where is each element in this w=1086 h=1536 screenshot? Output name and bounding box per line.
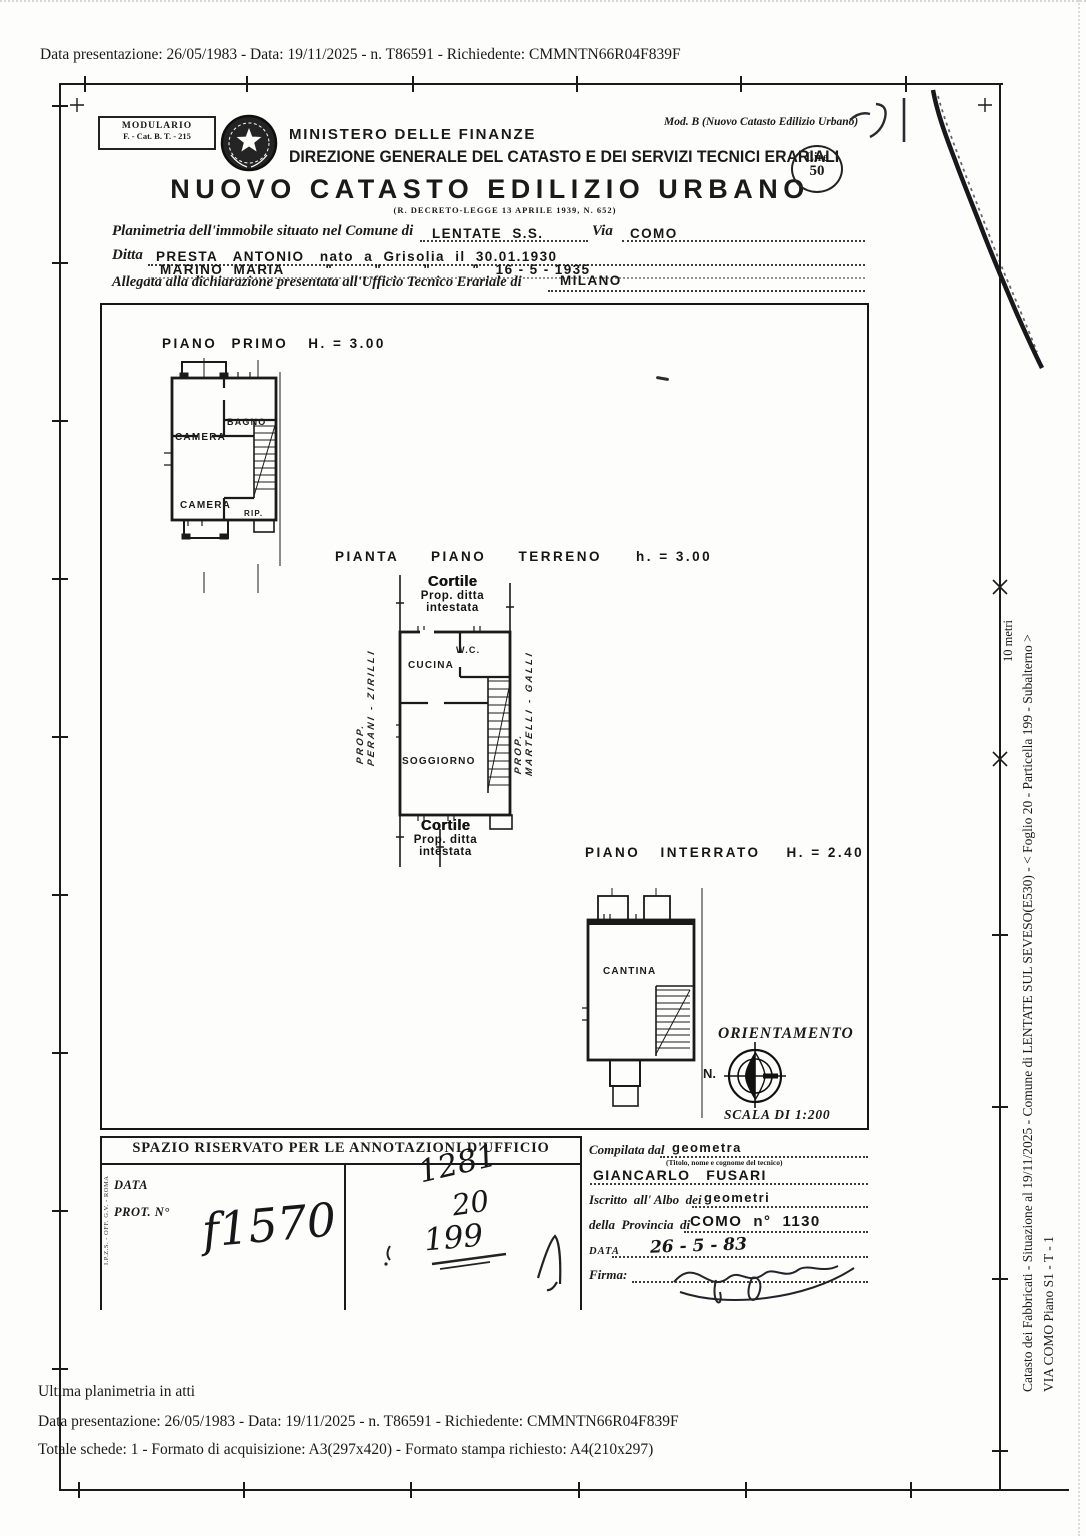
ruler-tick — [78, 1482, 80, 1498]
titolo-note: (Titolo, nome e cognome del tecnico) — [666, 1158, 783, 1167]
basement-title-text: PIANO INTERRATO — [585, 845, 761, 860]
room-label-camera-1: CAMERA — [175, 432, 226, 443]
scale-bar-label: 10 metri — [1001, 620, 1016, 662]
planimetria-label: Planimetria dell'immobile situato nel Co… — [112, 223, 413, 240]
ruler-tick — [576, 76, 578, 92]
dotted-line — [692, 1206, 868, 1208]
ruler-tick — [410, 1482, 412, 1498]
cortile-top-title: Cortile — [405, 574, 500, 590]
firma-label: Firma: — [589, 1267, 627, 1283]
via-label: Via — [592, 223, 613, 240]
ruler-tick — [52, 262, 68, 264]
technician-name: GIANCARLO FUSARI — [593, 1167, 767, 1183]
scanned-cadastral-document: Data presentazione: 26/05/1983 - Data: 1… — [0, 0, 1086, 1536]
room-label-cantina: CANTINA — [603, 966, 656, 977]
cortile-top-sub2: intestata — [405, 602, 500, 614]
printer-imprint: I.P.Z.S. - OFF. G.V. - ROMA — [103, 1176, 110, 1265]
dotted-line — [684, 1231, 868, 1233]
room-label-rip: RIP. — [244, 509, 263, 518]
first-floor-height: H. = 3.00 — [308, 336, 386, 351]
cortile-top-sub1: Prop. ditta — [405, 590, 500, 602]
allegata-label: Allegata alla dichiarazione presentata a… — [112, 274, 522, 291]
left-prop-name: PERANI - ZIRILLI — [366, 648, 377, 766]
mod-b-note: Mod. B (Nuovo Catasto Edilizio Urbano) — [664, 116, 858, 128]
provincia-label: della Provincia di — [589, 1217, 690, 1233]
first-floor-plan — [158, 358, 298, 593]
room-label-bagno: BAGNO — [227, 417, 267, 427]
state-emblem — [219, 111, 279, 175]
law-reference: (R. DECRETO-LEGGE 13 APRILE 1939, N. 652… — [330, 205, 680, 215]
lire-stamp: Lire 50 — [791, 145, 843, 193]
left-prop-prefix: PROP. — [355, 647, 366, 765]
annot-data-label: DATA — [114, 1178, 148, 1193]
direction-title: DIREZIONE GENERALE DEL CATASTO E DEI SER… — [289, 147, 839, 167]
iscritto-value: geometri — [704, 1190, 770, 1205]
basement-height: H. = 2.40 — [787, 845, 865, 860]
ground-floor-height: h. = 3.00 — [636, 549, 712, 564]
cortile-bottom-sub1: Prop. ditta — [398, 834, 493, 846]
scale-label: SCALA DI 1:200 — [724, 1107, 830, 1123]
basement-plan — [578, 888, 713, 1123]
annot-divider — [344, 1164, 346, 1310]
modulario-ref: F. - Cat. B. T. - 215 — [100, 131, 214, 141]
room-label-soggiorno: SOGGIORNO — [402, 756, 476, 767]
scan-header-line: Data presentazione: 26/05/1983 - Data: 1… — [40, 46, 681, 64]
compilata-label: Compilata dal — [589, 1142, 664, 1158]
annotations-title: SPAZIO RISERVATO PER LE ANNOTAZIONI D'UF… — [104, 1140, 578, 1157]
cortile-bottom-sub2: intestata — [398, 846, 493, 858]
pen-scribble — [903, 76, 1078, 376]
first-floor-title: PIANO PRIMO H. = 3.00 — [162, 336, 386, 351]
ministry-title: MINISTERO DELLE FINANZE — [289, 126, 536, 143]
register-mark — [70, 98, 84, 112]
compass-icon — [722, 1042, 788, 1108]
ditta-label: Ditta — [112, 247, 143, 264]
basement-title: PIANO INTERRATO H. = 2.40 — [585, 845, 864, 860]
via-value: COMO — [630, 226, 678, 241]
ruler-tick — [52, 1052, 68, 1054]
left-property-label: PROP. PERANI - ZIRILLI — [355, 648, 377, 765]
ruler-tick — [992, 1450, 1008, 1452]
frame-left — [59, 83, 61, 1491]
ruler-tick — [52, 578, 68, 580]
cut-mark — [991, 750, 1009, 768]
ruler-tick — [992, 1278, 1008, 1280]
pen-mark — [842, 92, 912, 150]
modulario-box: MODULARIO F. - Cat. B. T. - 215 — [98, 116, 216, 150]
room-label-cucina: CUCINA — [408, 660, 454, 671]
scan-edge-top — [0, 0, 1086, 2]
comune-value: LENTATE S.S. — [432, 226, 543, 241]
frame-top — [59, 83, 1003, 85]
right-prop-name: MARTELLI - GALLI — [524, 650, 535, 777]
annot-right — [580, 1136, 582, 1310]
footer-line-2: Data presentazione: 26/05/1983 - Data: 1… — [38, 1413, 679, 1431]
annot-underline — [100, 1163, 582, 1165]
annot-prot-label: PROT. N° — [114, 1205, 170, 1220]
ruler-tick — [578, 1482, 580, 1498]
ruler-tick — [243, 1482, 245, 1498]
courtyard-label-bottom: Cortile Prop. ditta intestata — [398, 818, 493, 858]
sidebar-caption-line1: Catasto dei Fabbricati - Situazione al 1… — [1017, 574, 1038, 1392]
ruler-tick — [52, 420, 68, 422]
handwriting-underline — [428, 1250, 523, 1272]
handwriting-caret — [532, 1228, 572, 1294]
ruler-tick — [52, 105, 68, 107]
lire-stamp-amount: 50 — [793, 164, 841, 179]
sidebar-caption-line2: VIA COMO Piano S1 - T - 1 — [1038, 574, 1059, 1392]
scan-edge-right — [1078, 0, 1080, 1536]
ruler-tick — [52, 1210, 68, 1212]
footer-line-3: Totale schede: 1 - Formato di acquisizio… — [38, 1441, 653, 1459]
ruler-tick — [246, 76, 248, 92]
courtyard-label-top: Cortile Prop. ditta intestata — [405, 574, 500, 614]
dotted-line — [548, 290, 865, 292]
right-prop-prefix: PROP. — [513, 648, 524, 775]
ruler-tick — [52, 1368, 68, 1370]
document-title: NUOVO CATASTO EDILIZIO URBANO — [150, 174, 830, 205]
modulario-title: MODULARIO — [100, 121, 214, 131]
room-label-camera-2: CAMERA — [180, 500, 231, 511]
footer-line-1: Ultima planimetria in atti — [38, 1383, 195, 1401]
ruler-tick — [52, 736, 68, 738]
dotted-line — [590, 1183, 868, 1185]
handwriting-prot-number: f1570 — [200, 1192, 338, 1257]
annot-top — [100, 1136, 582, 1138]
ruler-tick — [910, 1482, 912, 1498]
annot-left — [100, 1136, 102, 1310]
ruler-tick — [740, 76, 742, 92]
ruler-tick — [992, 934, 1008, 936]
orientation-title: ORIENTAMENTO — [718, 1025, 854, 1043]
first-floor-title-text: PIANO PRIMO — [162, 336, 288, 351]
cortile-bottom-title: Cortile — [398, 818, 493, 834]
ruler-tick — [745, 1482, 747, 1498]
pen-tick — [383, 1244, 395, 1266]
room-label-wc: W.C. — [456, 645, 480, 655]
ufficio-value: MILANO — [560, 273, 622, 288]
ground-floor-title: PIANTA PIANO TERRENO h. = 3.00 — [335, 549, 712, 564]
ruler-tick — [84, 76, 86, 92]
right-property-label: PROP. MARTELLI - GALLI — [513, 650, 535, 775]
ground-floor-title-text: PIANTA PIANO TERRENO — [335, 549, 602, 564]
compilata-value: geometra — [672, 1140, 742, 1155]
ruler-tick — [412, 76, 414, 92]
handwriting-number-2: 20 — [450, 1184, 491, 1223]
ruler-tick — [52, 894, 68, 896]
iscritto-label: Iscritto all' Albo dei — [589, 1192, 702, 1208]
signature — [656, 1238, 871, 1313]
cut-mark — [991, 578, 1009, 596]
provincia-value: COMO n° 1130 — [690, 1213, 821, 1230]
north-label: N. — [703, 1066, 716, 1081]
frame-bottom — [59, 1489, 1069, 1491]
ruler-tick — [992, 1106, 1008, 1108]
sidebar-caption: Catasto dei Fabbricati - Situazione al 1… — [1017, 574, 1059, 1392]
